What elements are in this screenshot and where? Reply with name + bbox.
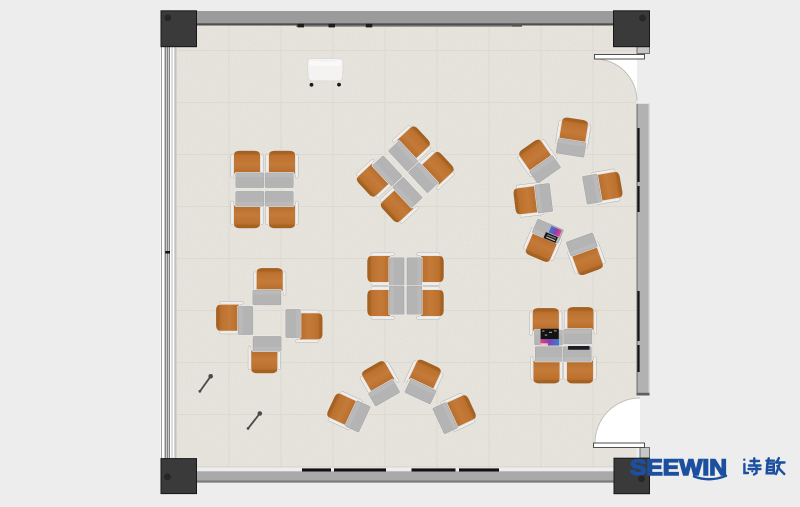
svg-text:SEEWIN: SEEWIN <box>630 455 727 480</box>
